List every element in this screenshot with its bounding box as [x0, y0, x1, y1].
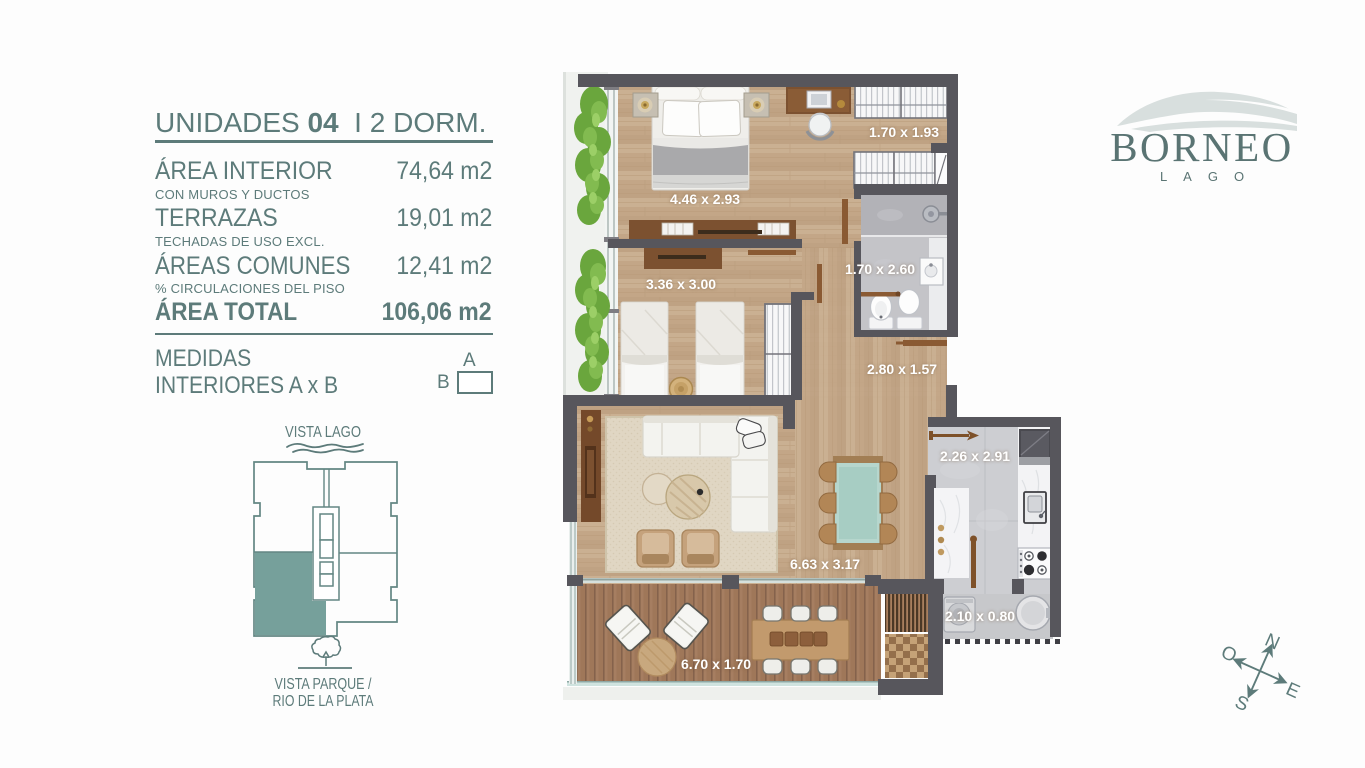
svg-text:S: S: [1232, 692, 1252, 716]
svg-text:2.26 x 2.91: 2.26 x 2.91: [940, 448, 1010, 464]
svg-text:6.70 x 1.70: 6.70 x 1.70: [681, 656, 751, 672]
svg-text:3.36 x 3.00: 3.36 x 3.00: [646, 276, 716, 292]
svg-text:2.80 x 1.57: 2.80 x 1.57: [867, 361, 937, 377]
svg-text:1.70 x 2.60: 1.70 x 2.60: [845, 261, 915, 277]
svg-text:VISTA LAGO: VISTA LAGO: [285, 424, 361, 441]
svg-text:BORNEO: BORNEO: [1110, 124, 1294, 170]
svg-text:RIO DE LA PLATA: RIO DE LA PLATA: [273, 693, 375, 710]
svg-text:1.70 x 1.93: 1.70 x 1.93: [869, 124, 939, 140]
svg-text:4.46 x 2.93: 4.46 x 2.93: [670, 191, 740, 207]
svg-text:2.10 x 0.80: 2.10 x 0.80: [945, 608, 1015, 624]
svg-text:6.63 x 3.17: 6.63 x 3.17: [790, 556, 860, 572]
svg-text:VISTA PARQUE /: VISTA PARQUE /: [275, 676, 373, 693]
svg-text:LAGO: LAGO: [1160, 169, 1260, 184]
